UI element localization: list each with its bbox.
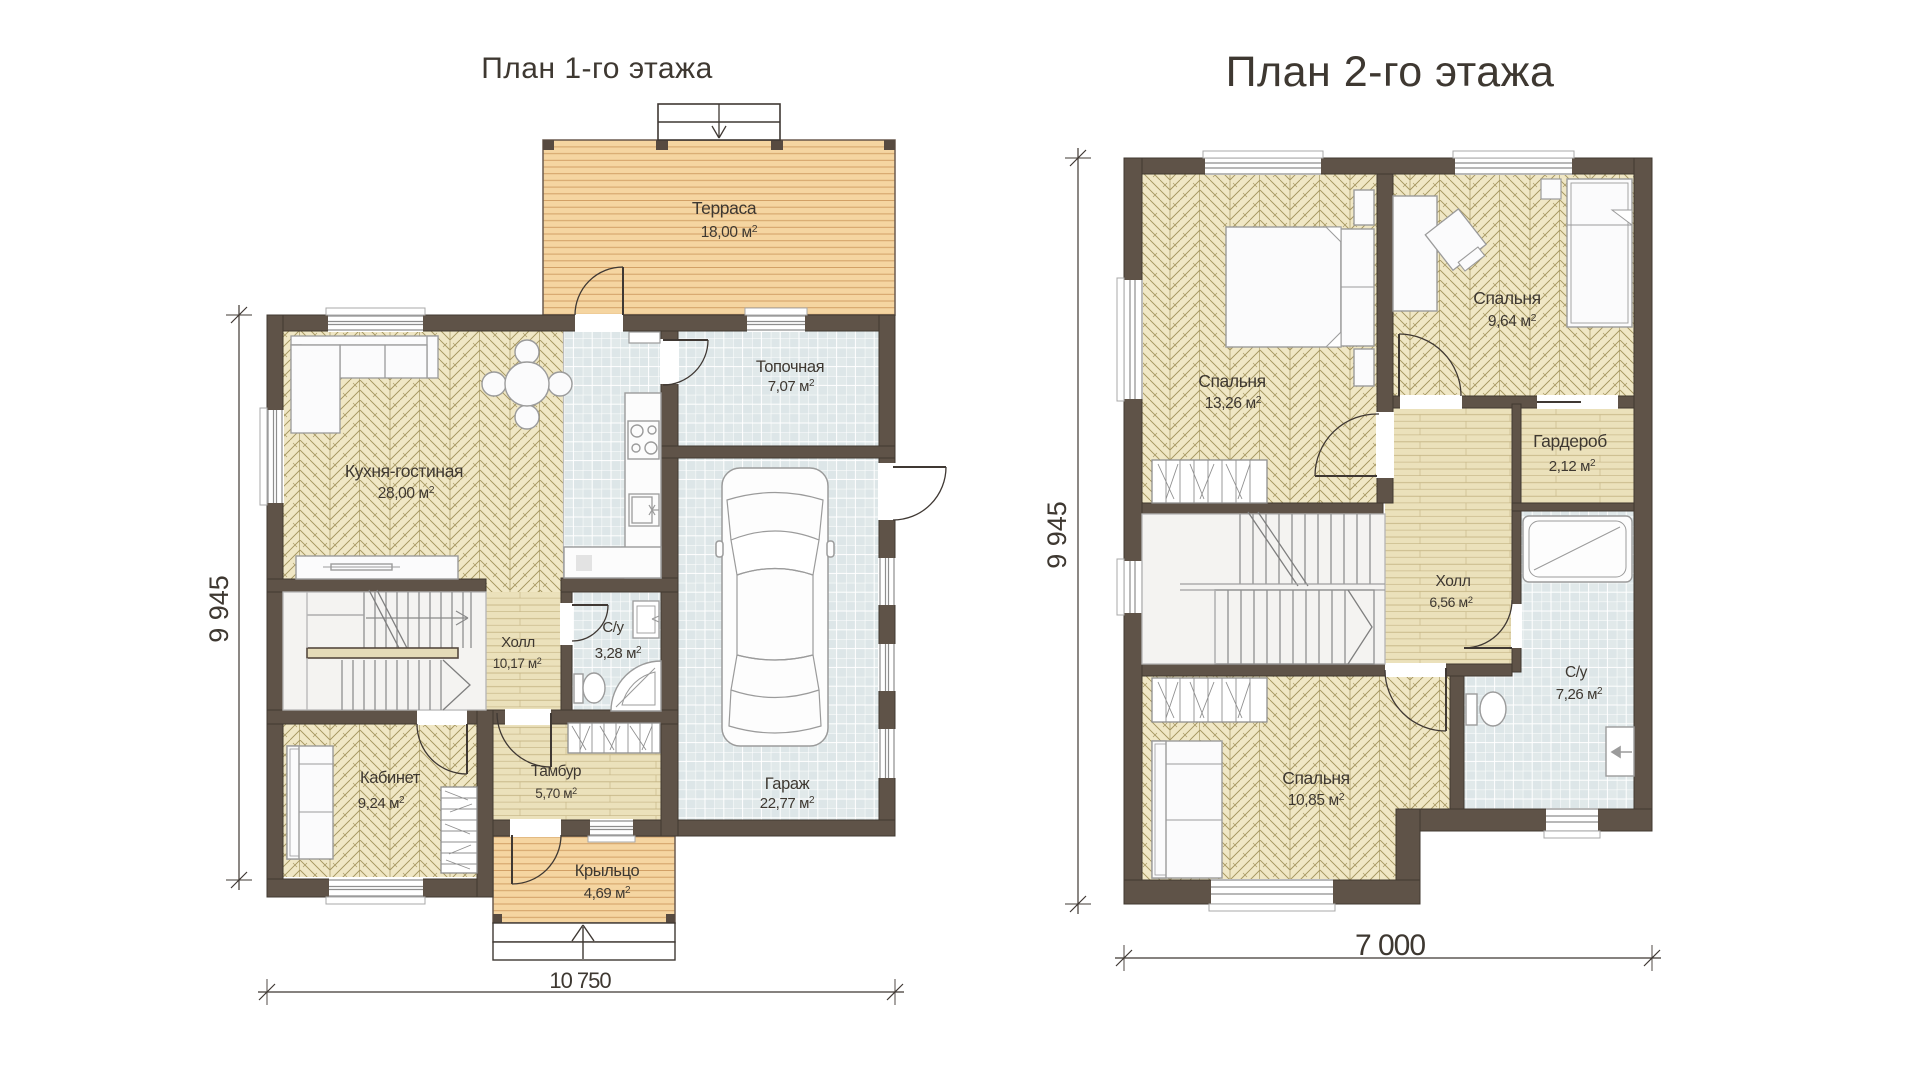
svg-text:Спальня: Спальня xyxy=(1473,288,1541,308)
svg-text:План 2-го этажа: План 2-го этажа xyxy=(1226,48,1555,96)
svg-text:Спальня: Спальня xyxy=(1198,371,1266,391)
svg-text:6,56 м2: 6,56 м2 xyxy=(1429,594,1472,610)
svg-text:Холл: Холл xyxy=(501,634,535,651)
svg-text:Кухня-гостиная: Кухня-гостиная xyxy=(345,461,463,481)
svg-text:Кабинет: Кабинет xyxy=(360,769,421,787)
svg-text:Спальня: Спальня xyxy=(1282,768,1350,788)
svg-text:22,77 м2: 22,77 м2 xyxy=(760,795,815,812)
svg-text:Терраса: Терраса xyxy=(692,198,757,218)
svg-text:Тамбур: Тамбур xyxy=(531,763,581,780)
svg-text:Гараж: Гараж xyxy=(765,775,810,793)
svg-text:18,00 м2: 18,00 м2 xyxy=(701,223,758,241)
svg-text:10,85 м2: 10,85 м2 xyxy=(1288,791,1345,809)
svg-text:7 000: 7 000 xyxy=(1355,929,1425,962)
svg-text:10,17 м2: 10,17 м2 xyxy=(493,656,542,671)
svg-text:9,64 м2: 9,64 м2 xyxy=(1488,312,1537,330)
svg-text:9 945: 9 945 xyxy=(1042,501,1072,569)
svg-text:7,26 м2: 7,26 м2 xyxy=(1556,686,1603,703)
svg-text:План 1-го этажа: План 1-го этажа xyxy=(481,52,713,85)
svg-text:7,07 м2: 7,07 м2 xyxy=(768,378,815,395)
svg-text:28,00 м2: 28,00 м2 xyxy=(378,484,435,502)
svg-text:2,12 м2: 2,12 м2 xyxy=(1549,458,1596,475)
svg-text:С/у: С/у xyxy=(602,619,624,636)
svg-text:13,26 м2: 13,26 м2 xyxy=(1205,394,1262,412)
svg-text:9,24 м2: 9,24 м2 xyxy=(358,795,405,812)
svg-text:С/у: С/у xyxy=(1565,664,1588,681)
svg-text:Гардероб: Гардероб xyxy=(1533,431,1607,451)
svg-text:5,70 м2: 5,70 м2 xyxy=(535,786,577,801)
svg-text:Топочная: Топочная xyxy=(756,358,824,376)
svg-text:3,28 м2: 3,28 м2 xyxy=(595,645,642,662)
svg-text:9 945: 9 945 xyxy=(204,575,234,643)
svg-text:4,69 м2: 4,69 м2 xyxy=(584,885,631,902)
svg-text:Крыльцо: Крыльцо xyxy=(575,862,640,880)
svg-text:Холл: Холл xyxy=(1436,573,1471,590)
svg-text:10 750: 10 750 xyxy=(549,968,611,993)
